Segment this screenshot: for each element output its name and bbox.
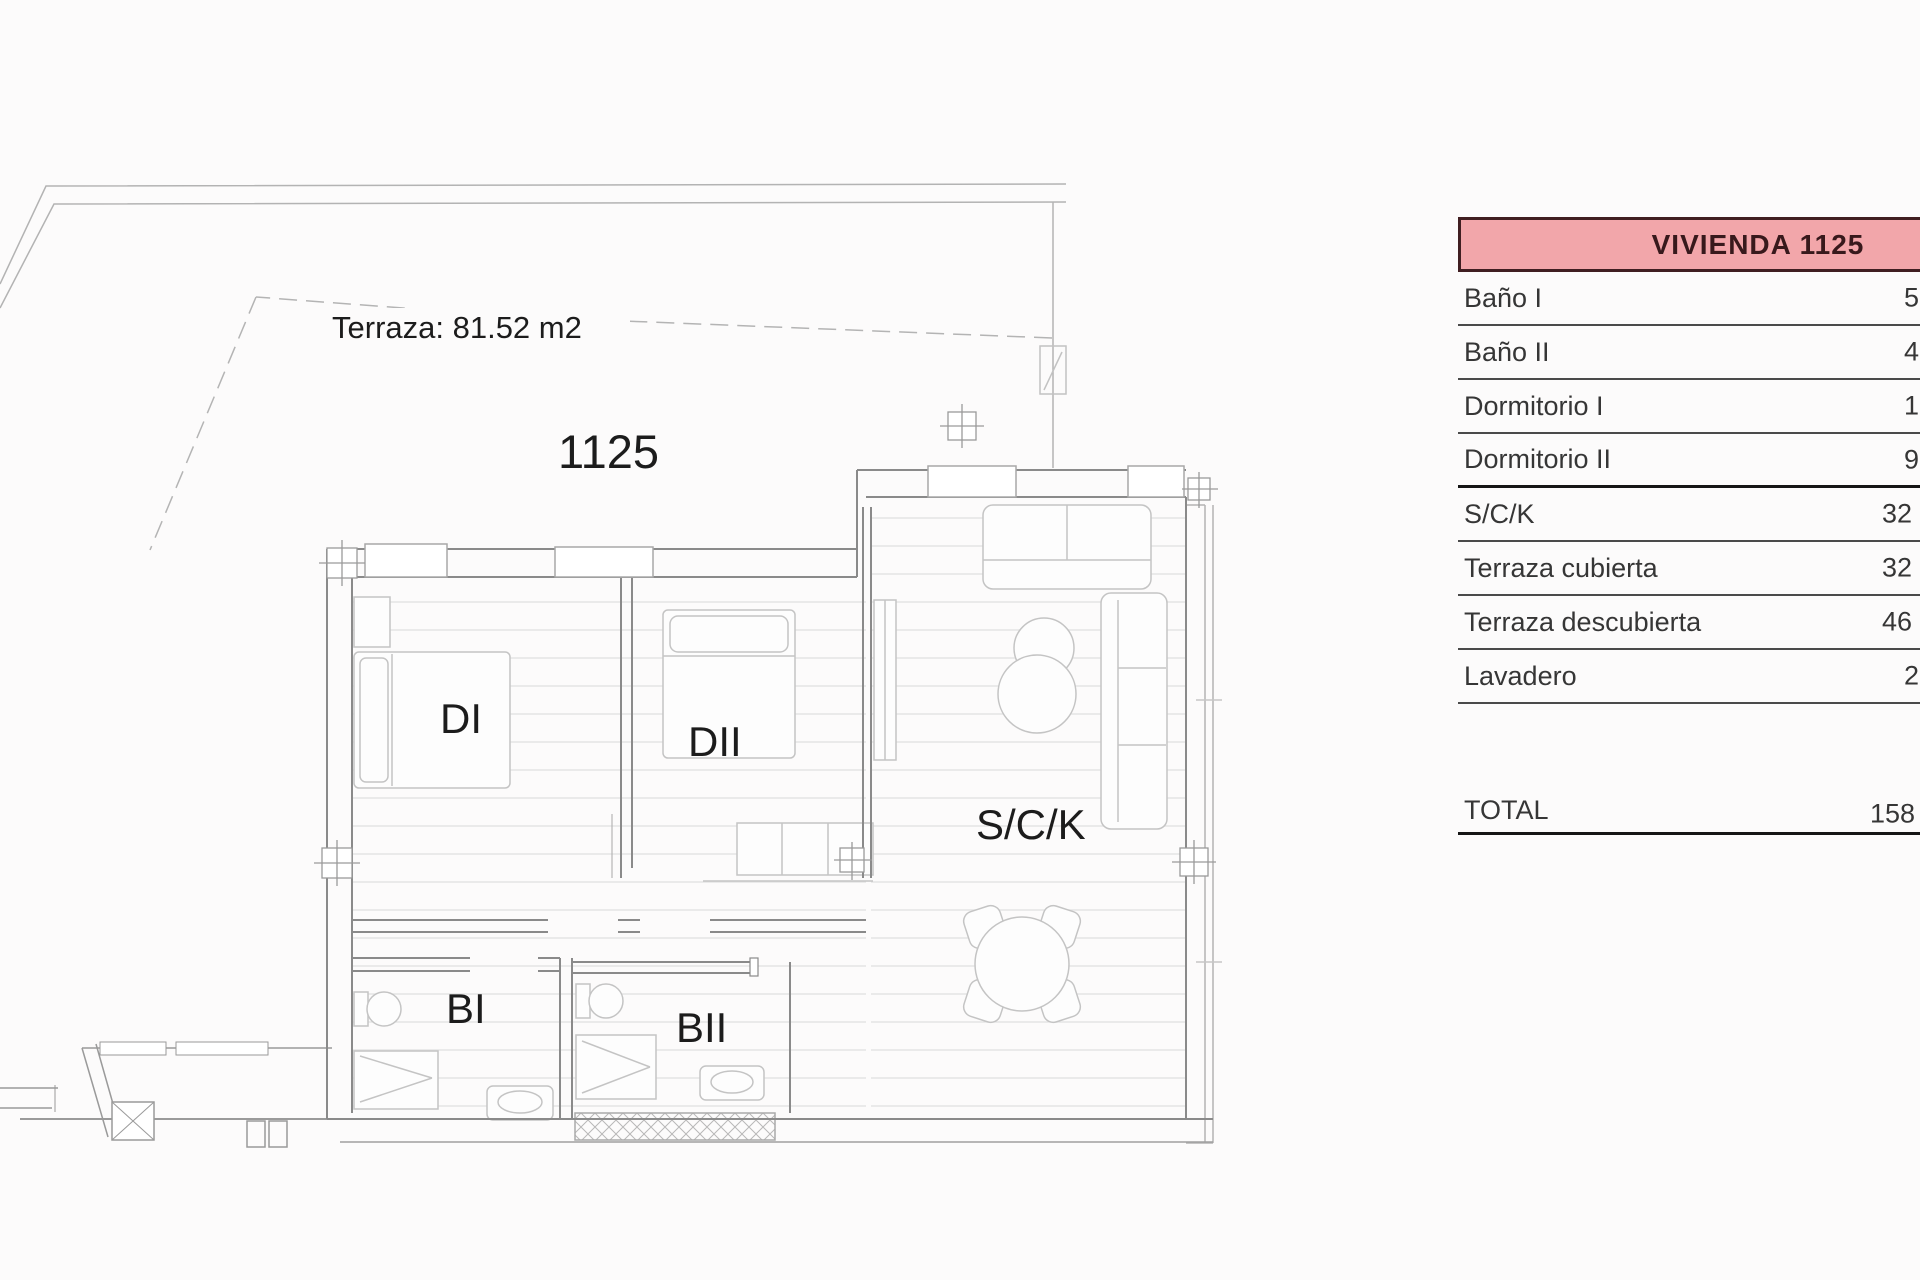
terrace-lower-structure xyxy=(0,1042,332,1147)
row-value: 9 xyxy=(1904,444,1919,475)
room-label-dii: DII xyxy=(688,718,742,765)
row-label: Baño I xyxy=(1464,283,1542,314)
table-title: VIVIENDA 1125 xyxy=(1652,229,1865,261)
window xyxy=(365,544,447,577)
unit-number: 1125 xyxy=(558,425,659,478)
sofa-top xyxy=(983,505,1151,589)
table-row: Baño I 5 xyxy=(1458,272,1920,326)
column-cross xyxy=(940,404,984,448)
area-table: VIVIENDA 1125 Baño I 5 Baño II 4 Dormito… xyxy=(1458,217,1920,835)
row-value: 2 xyxy=(1904,661,1919,692)
row-label: Terraza cubierta xyxy=(1464,553,1658,584)
row-value: 4 xyxy=(1904,337,1919,368)
bed-di xyxy=(354,652,510,788)
table-row: Terraza descubierta 46 xyxy=(1458,596,1920,650)
table-row: Terraza cubierta 32 xyxy=(1458,542,1920,596)
row-label: Dormitorio I xyxy=(1464,391,1604,422)
column-cross xyxy=(1182,472,1218,508)
table-row: Baño II 4 xyxy=(1458,326,1920,380)
row-value: 1 xyxy=(1904,391,1919,422)
shower-bi xyxy=(354,1051,438,1109)
screenshot-root: { "page": { "background": "#fcfbfb" }, "… xyxy=(0,0,1920,1280)
sink-bii xyxy=(700,1066,764,1100)
table-header: VIVIENDA 1125 xyxy=(1458,217,1920,272)
table-row: Lavadero 2 xyxy=(1458,650,1920,704)
table-row: Dormitorio II 9 xyxy=(1458,434,1920,488)
total-label: TOTAL xyxy=(1464,795,1549,825)
row-label: Lavadero xyxy=(1464,661,1577,692)
table-total-row: TOTAL 158 xyxy=(1458,795,1920,835)
sofa-right xyxy=(1101,593,1167,829)
terrace-note: Terraza: 81.52 m2 xyxy=(332,310,582,345)
dining-set xyxy=(961,903,1083,1025)
row-value: 32 xyxy=(1882,499,1912,530)
room-label-sck: S/C/K xyxy=(976,801,1086,848)
room-label-bii: BII xyxy=(676,1004,727,1051)
row-label: Baño II xyxy=(1464,337,1550,368)
window xyxy=(1128,466,1184,497)
row-value: 46 xyxy=(1882,607,1912,638)
toilet-bi xyxy=(354,992,401,1026)
total-value: 158 xyxy=(1870,798,1915,829)
window xyxy=(555,547,653,577)
row-label: S/C/K xyxy=(1464,499,1535,530)
column-x-marker xyxy=(112,1102,154,1140)
toilet-bii xyxy=(576,984,623,1018)
table-row: S/C/K 32 xyxy=(1458,488,1920,542)
sink-bi xyxy=(487,1086,553,1120)
lavadero-counter xyxy=(575,1113,775,1140)
row-label: Terraza descubierta xyxy=(1464,607,1701,638)
room-label-bi: BI xyxy=(446,985,486,1032)
row-label: Dormitorio II xyxy=(1464,444,1611,475)
tv-unit xyxy=(874,600,896,760)
room-label-di: DI xyxy=(440,695,482,742)
row-value: 32 xyxy=(1882,553,1912,584)
nightstand xyxy=(354,597,390,647)
table-row: Dormitorio I 1 xyxy=(1458,380,1920,434)
window xyxy=(928,466,1016,497)
shower-bii xyxy=(576,1035,656,1099)
row-value: 5 xyxy=(1904,283,1919,314)
